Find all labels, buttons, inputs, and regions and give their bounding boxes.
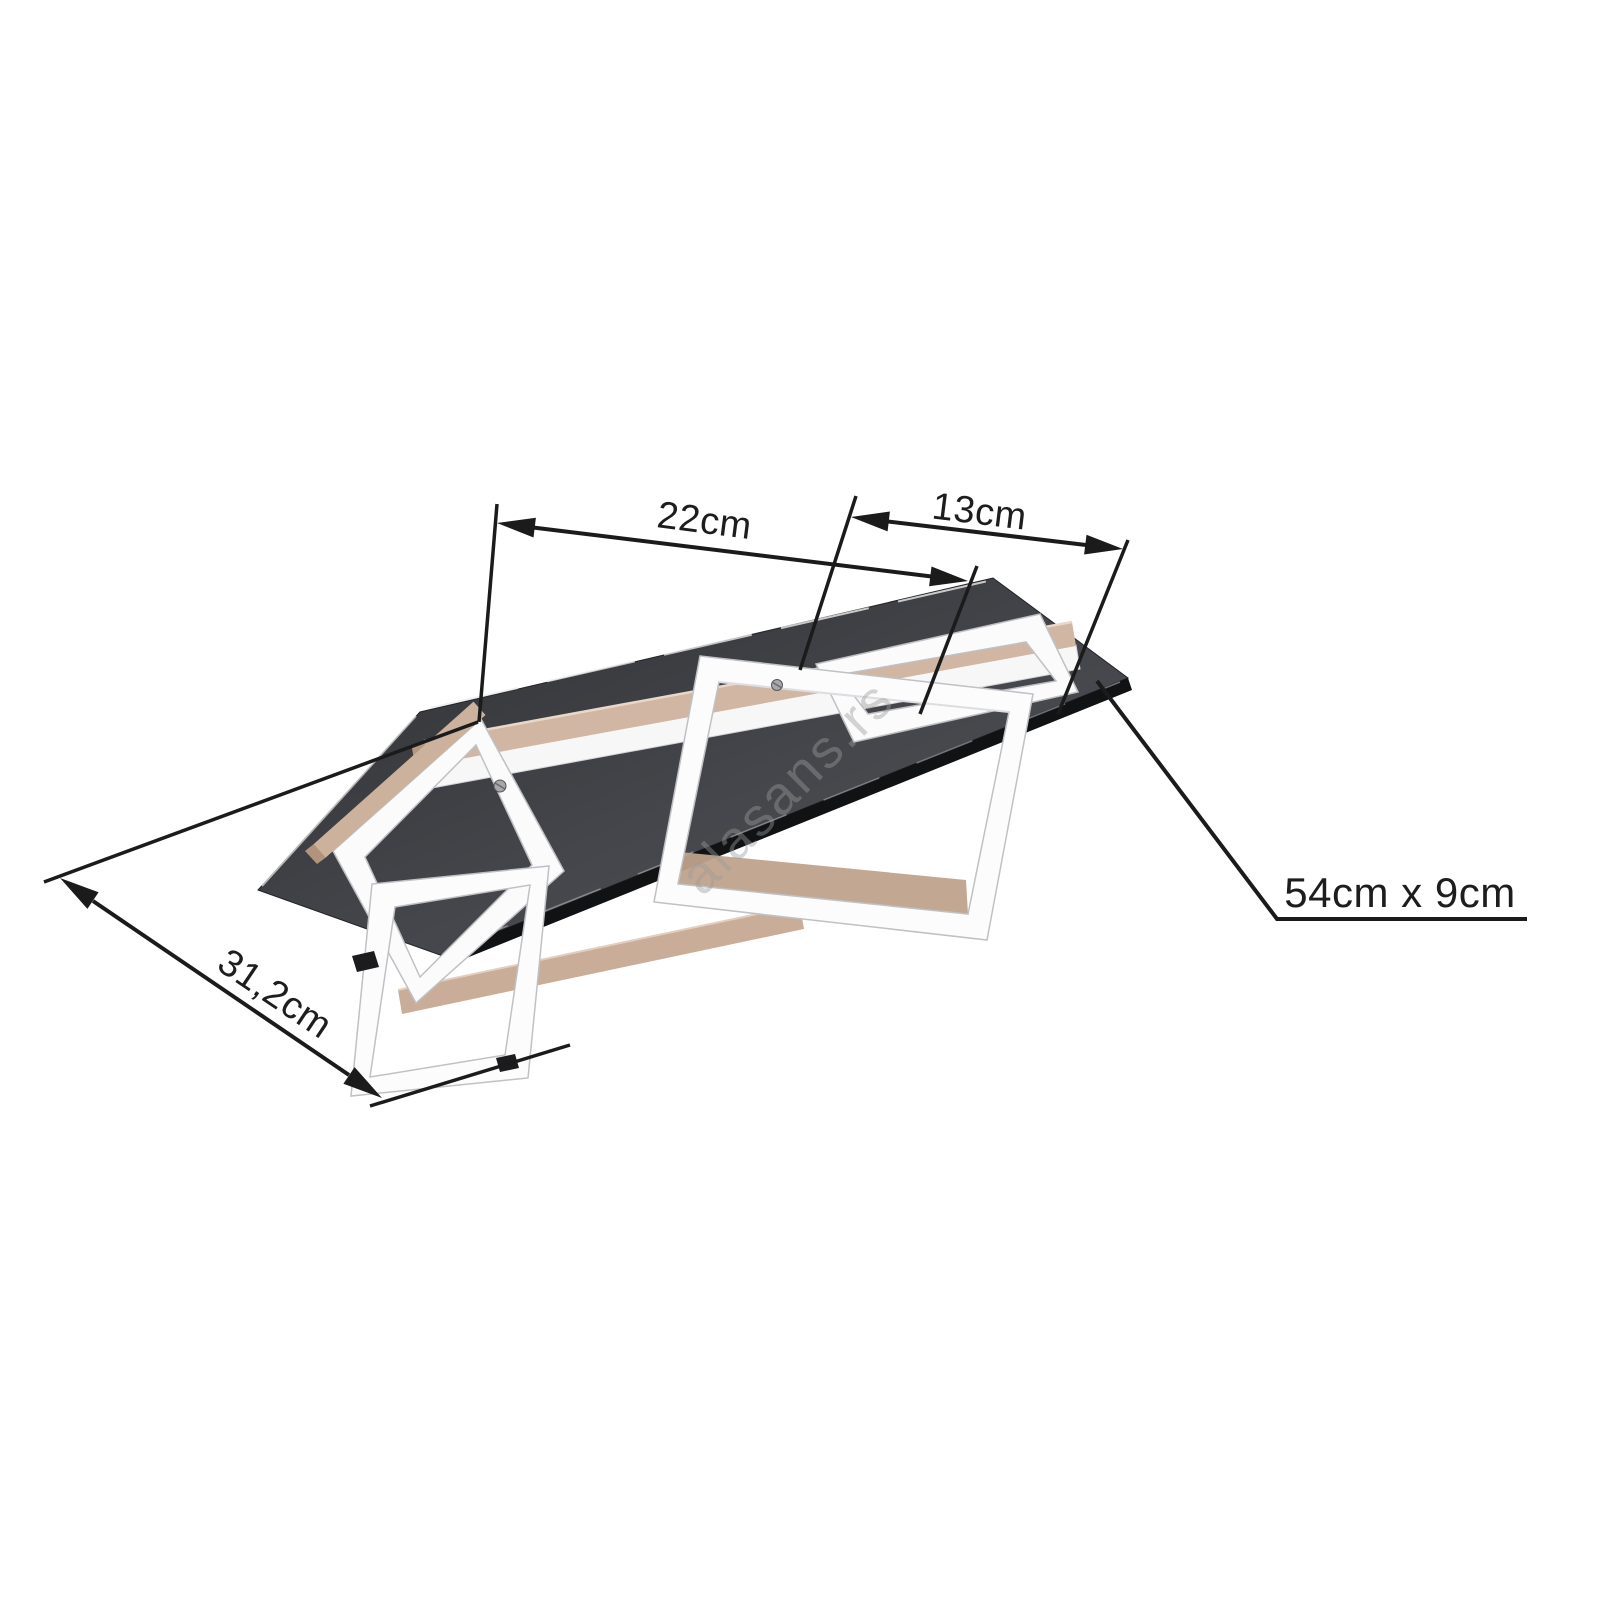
arrowhead-right-icon — [1084, 535, 1123, 555]
dimension-label-left-span: 22cm — [655, 494, 754, 548]
arrowhead-left-icon — [851, 512, 890, 532]
arrowhead-right-icon — [929, 567, 968, 587]
dimension-label-right-span: 13cm — [930, 485, 1029, 538]
arrowhead-left-icon — [497, 518, 536, 538]
extension-line-22-left — [479, 504, 497, 722]
arrowhead-up-left-icon — [60, 878, 99, 909]
screw-icon — [772, 680, 783, 691]
diagram-canvas: alasans.rs — [0, 0, 1600, 1600]
product-dimension-diagram: alasans.rs — [0, 0, 1600, 1600]
dimension-label-overall-size: 54cm x 9cm — [1284, 869, 1515, 916]
screw-icon — [494, 780, 506, 792]
